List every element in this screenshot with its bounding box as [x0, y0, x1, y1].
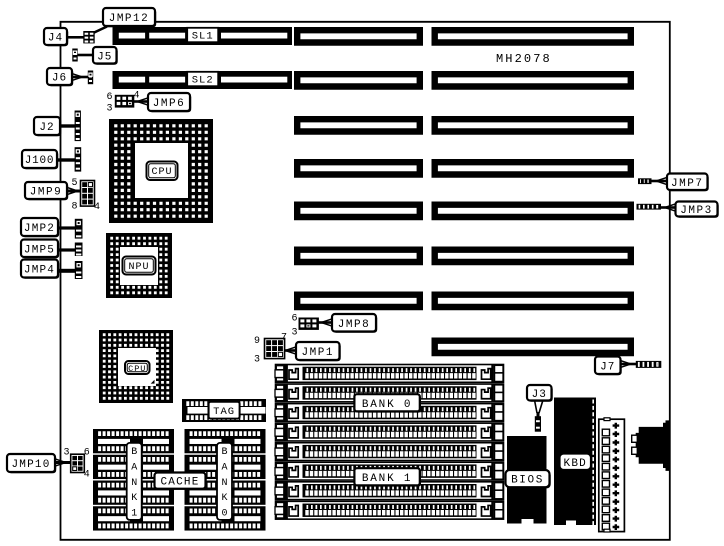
svg-text:B: B	[221, 447, 227, 458]
svg-text:CPU: CPU	[151, 167, 172, 178]
svg-text:3: 3	[64, 448, 70, 459]
svg-text:NPU: NPU	[128, 262, 149, 273]
svg-text:TAG: TAG	[213, 406, 235, 418]
svg-text:J2: J2	[39, 122, 54, 134]
svg-text:JMP2: JMP2	[24, 223, 55, 235]
svg-text:7: 7	[281, 333, 287, 344]
svg-text:K: K	[131, 493, 137, 504]
svg-text:JMP3: JMP3	[680, 205, 712, 217]
svg-text:6: 6	[107, 92, 113, 103]
svg-text:BANK 1: BANK 1	[362, 473, 412, 485]
svg-text:J4: J4	[48, 33, 63, 45]
svg-text:1: 1	[131, 509, 137, 520]
svg-text:JMP8: JMP8	[338, 319, 370, 331]
svg-text:JMP5: JMP5	[24, 244, 55, 256]
svg-text:4: 4	[134, 91, 140, 102]
svg-text:N: N	[131, 478, 137, 489]
svg-text:J3: J3	[532, 389, 547, 401]
svg-text:SL1: SL1	[192, 31, 214, 43]
svg-text:JMP1: JMP1	[302, 347, 334, 359]
svg-text:A: A	[221, 462, 227, 473]
svg-text:J6: J6	[52, 73, 67, 85]
svg-text:5: 5	[72, 178, 78, 189]
svg-text:JMP9: JMP9	[30, 187, 62, 199]
svg-text:N: N	[221, 478, 227, 489]
svg-text:6: 6	[292, 314, 298, 325]
svg-text:3: 3	[292, 328, 298, 339]
svg-text:CACHE: CACHE	[160, 477, 199, 489]
svg-text:BANK 0: BANK 0	[362, 399, 412, 411]
svg-text:MH2078: MH2078	[496, 52, 552, 66]
svg-text:0: 0	[221, 509, 227, 520]
svg-text:B: B	[131, 447, 137, 458]
svg-text:9: 9	[254, 336, 260, 347]
svg-text:KBD: KBD	[564, 458, 587, 470]
svg-text:4: 4	[94, 202, 100, 213]
svg-text:SL2: SL2	[192, 75, 214, 87]
svg-text:JMP4: JMP4	[24, 265, 55, 277]
svg-text:8: 8	[72, 202, 78, 213]
svg-text:JMP6: JMP6	[153, 98, 185, 110]
svg-text:K: K	[221, 493, 227, 504]
svg-text:BIOS: BIOS	[511, 475, 544, 487]
svg-text:6: 6	[84, 448, 90, 459]
svg-text:JMP7: JMP7	[671, 178, 703, 190]
svg-text:JMP12: JMP12	[109, 13, 150, 25]
svg-text:JMP10: JMP10	[11, 459, 50, 471]
svg-text:A: A	[131, 462, 137, 473]
svg-text:4: 4	[84, 470, 90, 481]
svg-text:3: 3	[254, 355, 260, 366]
svg-text:J7: J7	[600, 361, 615, 373]
svg-text:3: 3	[107, 104, 113, 115]
svg-text:CPU: CPU	[128, 364, 146, 374]
svg-text:J5: J5	[97, 51, 112, 63]
svg-text:J100: J100	[25, 155, 55, 167]
